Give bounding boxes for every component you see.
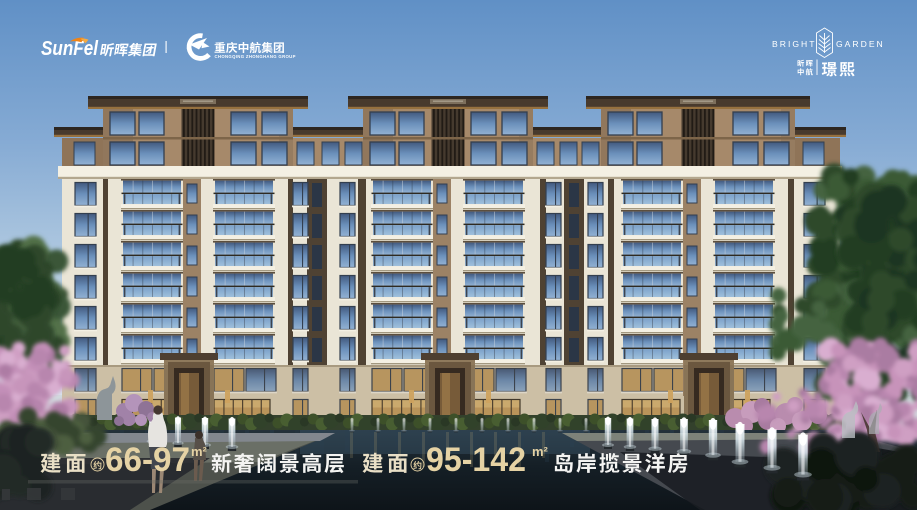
svg-text:BRIGHT: BRIGHT [772,39,816,49]
svg-text:95-142: 95-142 [426,441,526,479]
svg-text:CHONGQING ZHONGHANG GROUP: CHONGQING ZHONGHANG GROUP [215,54,296,59]
svg-text:66-97: 66-97 [105,441,190,479]
svg-text:GARDEN: GARDEN [836,39,885,49]
svg-text:SunFel: SunFel [41,38,98,60]
svg-text:m²: m² [191,444,208,459]
svg-text:m²: m² [532,444,549,459]
